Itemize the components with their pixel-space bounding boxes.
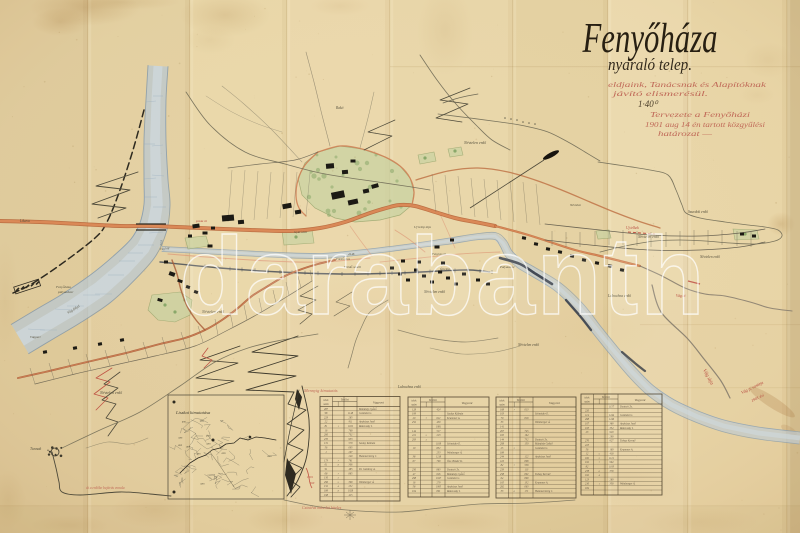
svg-text:296: 296 [324,481,329,484]
svg-text:1244: 1244 [609,414,615,417]
svg-text:Dr. Gárdony A.: Dr. Gárdony A. [358,468,376,471]
svg-text:165: 165 [500,481,505,484]
svg-text:104: 104 [412,490,417,493]
svg-text:131: 131 [324,442,329,445]
svg-text:Mennyig kimutatás: Mennyig kimutatás [303,388,338,393]
svg-text:Rakó: Rakó [335,106,344,110]
svg-text:Likava: Likava [19,219,30,223]
svg-text:287: 287 [324,408,329,411]
svg-text:Szalay Kálmán: Szalay Kálmán [359,442,376,445]
svg-text:Schneider E.: Schneider E. [535,413,549,416]
svg-text:1157: 1157 [609,405,615,408]
svg-text:Vagyont: Vagyont [373,401,385,405]
svg-text:Weinberger Á.: Weinberger Á. [359,481,375,484]
svg-text:eldjaink, Tanácsnak és Alapító: eldjaink, Tanácsnak és Alapítóknak [608,81,767,89]
svg-text:152: 152 [324,485,329,488]
svg-text:Andrássy Jenő: Andrássy Jenő [534,456,551,459]
svg-text:229: 229 [324,416,329,419]
svg-text:Rakovszky I.: Rakovszky I. [358,425,373,428]
svg-text:telek: telek [324,399,330,402]
svg-text:Deutsch Zs.: Deutsch Zs. [446,469,460,472]
svg-text:Szalay Kálmán: Szalay Kálmán [447,413,464,416]
svg-text:Weinberger Á.: Weinberger Á. [535,421,551,424]
svg-text:szám: szám [411,404,416,407]
svg-text:Vagyont: Vagyont [635,398,647,402]
svg-text:141: 141 [500,426,505,429]
svg-text:pályaudvar: pályaudvar [57,290,74,294]
svg-text:Özv. Binder K.: Özv. Binder K. [447,460,463,463]
svg-text:189: 189 [324,490,329,493]
svg-text:216: 216 [585,483,590,486]
svg-text:szám: szám [499,404,504,407]
svg-text:Névtelen erdő: Névtelen erdő [99,390,123,395]
svg-text:Névtelen erdő: Névtelen erdő [517,343,540,347]
svg-text:276: 276 [585,440,590,443]
svg-text:Andrássy Jenő: Andrássy Jenő [446,486,463,489]
svg-text:Liszkai kimutatása: Liszkai kimutatása [175,410,211,415]
svg-text:Weinberger Á.: Weinberger Á. [447,451,463,454]
svg-text:1218: 1218 [436,456,442,459]
svg-text:1: 1 [599,483,600,486]
svg-text:162: 162 [585,474,590,477]
svg-text:nyaraló telep.: nyaraló telep. [608,55,692,74]
svg-text:123: 123 [585,478,590,481]
svg-text:114: 114 [585,414,589,417]
svg-text:278: 278 [585,470,590,473]
svg-text:184: 184 [585,487,590,490]
svg-text:Krammer A.: Krammer A. [534,481,549,484]
svg-text:Fenyőháza: Fenyőháza [55,285,71,289]
svg-text:Szurdok erdő: Szurdok erdő [688,210,709,214]
svg-text:189: 189 [500,451,505,454]
svg-text:1168: 1168 [436,443,442,446]
svg-text:Vagyont: Vagyont [549,401,561,405]
svg-text:Schneider E.: Schneider E. [447,443,461,446]
svg-text:233: 233 [500,469,505,472]
svg-text:Mándoky Győző: Mándoky Győző [358,408,377,411]
svg-text:Névtelen erdő: Névtelen erdő [463,140,487,145]
svg-text:át a erdőbe bejárás vonala: át a erdőbe bejárás vonala [86,486,125,490]
svg-text:darabanth: darabanth [180,215,707,338]
svg-text:282: 282 [500,486,505,489]
svg-text:jávító elismerésül.: jávító elismerésül. [611,90,708,98]
svg-text:Lubochna erdő: Lubochna erdő [397,385,422,389]
svg-text:1148: 1148 [348,412,354,415]
svg-text:128: 128 [412,408,417,411]
svg-text:116: 116 [500,460,504,463]
svg-text:1: 1 [338,425,339,428]
svg-text:telek: telek [412,400,418,403]
svg-text:266: 266 [324,434,329,437]
svg-text:Vagyont: Vagyont [462,401,474,405]
svg-text:199: 199 [412,413,417,416]
svg-text:Deutsch Zs.: Deutsch Zs. [534,438,548,441]
svg-text:Gombási G.: Gombási G. [359,412,372,415]
svg-text:182: 182 [585,457,590,460]
svg-text:Csinálva másolat hiteles: Csinálva másolat hiteles [302,505,342,510]
svg-text:Krammer A.: Krammer A. [446,417,461,420]
svg-text:1047: 1047 [436,477,442,480]
svg-text:107: 107 [585,423,590,426]
svg-text:Hammersberg J.: Hammersberg J. [358,455,377,458]
svg-text:1601: 1601 [307,475,314,479]
svg-text:Tolnay Kornél: Tolnay Kornél [535,473,551,476]
svg-text:1182: 1182 [348,425,354,428]
svg-text:103: 103 [585,427,590,430]
svg-text:208: 208 [500,443,505,446]
svg-text:258: 258 [500,473,505,476]
svg-text:szám: szám [323,403,328,406]
svg-text:256: 256 [412,469,417,472]
svg-text:Terület: Terület [517,398,525,402]
svg-text:244: 244 [500,456,505,459]
svg-text:165: 165 [500,434,505,437]
svg-text:103: 103 [500,413,505,416]
svg-text:Gombási G.: Gombási G. [535,447,548,450]
svg-text:173: 173 [324,459,329,462]
svg-text:223: 223 [585,444,590,447]
svg-text:Tervezete a Fenyőházi: Tervezete a Fenyőházi [650,111,750,119]
svg-text:telek: telek [585,397,591,400]
svg-text:1·40⁰: 1·40⁰ [638,99,659,109]
svg-text:156: 156 [324,477,329,480]
svg-text:267: 267 [500,430,505,433]
svg-text:1081: 1081 [436,426,442,429]
svg-text:1901 aug 14 én tartott közgyűl: 1901 aug 14 én tartott közgyűlési [645,121,765,129]
svg-text:Terület: Terület [429,398,437,402]
svg-text:1121: 1121 [609,457,615,460]
svg-text:határozat —: határozat — [658,130,713,138]
svg-text:Hammersberg J.: Hammersberg J. [534,490,553,493]
svg-text:Névtelen: Névtelen [569,203,582,207]
svg-text:Terület: Terület [341,398,349,402]
svg-text:Krammer A.: Krammer A. [619,448,634,451]
svg-text:telek: telek [500,400,506,403]
svg-text:226: 226 [585,410,590,413]
svg-text:Gombási G.: Gombási G. [620,414,633,417]
svg-text:Gombási G.: Gombási G. [447,477,460,480]
svg-text:144: 144 [500,438,505,441]
svg-text:1095: 1095 [436,486,442,489]
svg-text:298: 298 [412,477,417,480]
svg-text:1193: 1193 [609,466,615,469]
svg-text:Rakovszky I.: Rakovszky I. [446,490,461,493]
svg-text:Terület: Terület [602,395,610,399]
svg-text:1246: 1246 [609,418,615,421]
svg-text:235: 235 [324,438,329,441]
svg-text:Vágpart: Vágpart [30,335,41,339]
svg-text:Andrássy Jenő: Andrássy Jenő [619,423,636,426]
svg-text:Mándoky Győző: Mándoky Győző [446,473,465,476]
svg-text:Deutsch Zs.: Deutsch Zs. [619,405,633,408]
svg-text:1028: 1028 [348,490,354,493]
svg-text:211: 211 [412,434,416,437]
svg-text:252: 252 [412,421,417,424]
svg-text:szám: szám [584,401,589,404]
svg-text:Weinberger Á.: Weinberger Á. [620,483,636,486]
svg-text:168: 168 [500,408,505,411]
svg-text:Andrássy Jenő: Andrássy Jenő [358,421,375,424]
svg-text:198: 198 [324,494,329,497]
svg-text:144: 144 [412,430,417,433]
svg-text:293: 293 [412,438,417,441]
svg-text:268: 268 [585,418,590,421]
svg-text:Tunnak: Tunnak [30,447,41,451]
svg-text:Tolnay Kornél: Tolnay Kornél [620,440,636,443]
svg-text:Mándoky Győző: Mándoky Győző [534,443,553,446]
svg-text:Rakovszky I.: Rakovszky I. [619,427,634,430]
svg-text:102: 102 [585,461,590,464]
